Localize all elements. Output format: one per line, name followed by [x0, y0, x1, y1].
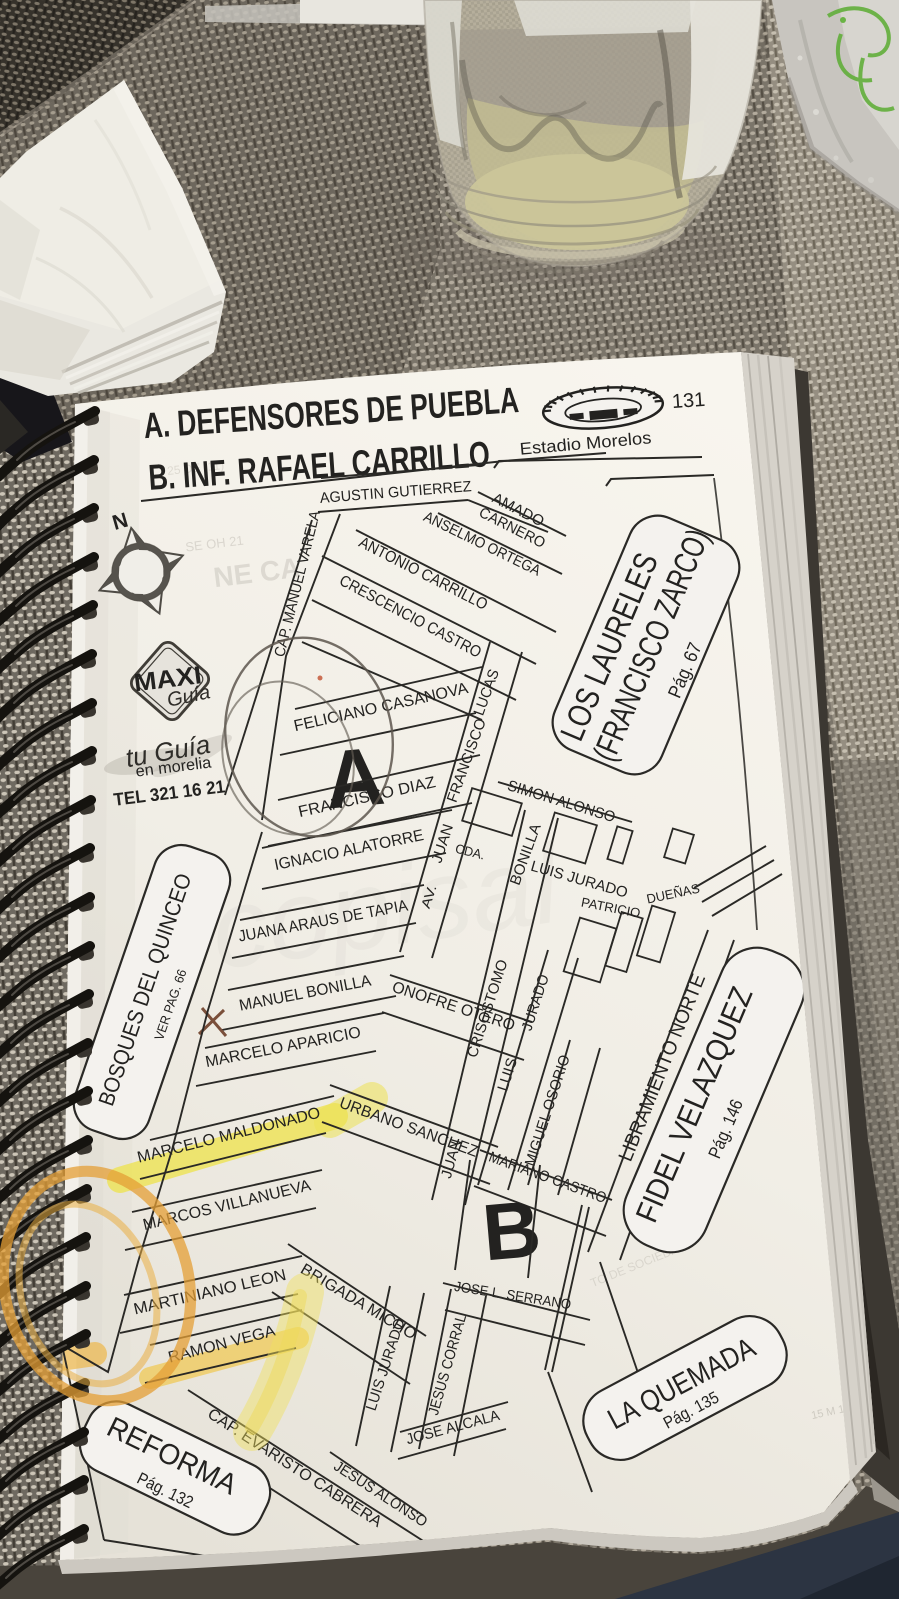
svg-text:131: 131 — [671, 389, 706, 413]
svg-text:B: B — [479, 1184, 544, 1278]
